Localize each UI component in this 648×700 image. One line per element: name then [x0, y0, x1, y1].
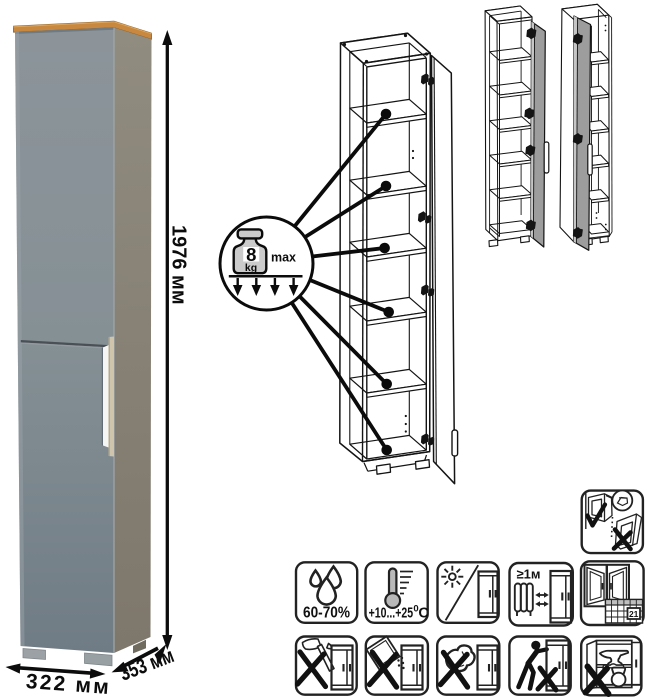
svg-text:max: max	[271, 251, 296, 265]
svg-text:+10...+25: +10...+25	[369, 606, 414, 622]
svg-text:60-70%: 60-70%	[303, 605, 350, 622]
svg-text:kg: kg	[245, 262, 257, 274]
svg-text:21: 21	[629, 609, 639, 619]
svg-text:≥1м: ≥1м	[517, 567, 541, 582]
svg-text:1976 мм: 1976 мм	[168, 225, 190, 305]
svg-text:С: С	[418, 606, 429, 622]
